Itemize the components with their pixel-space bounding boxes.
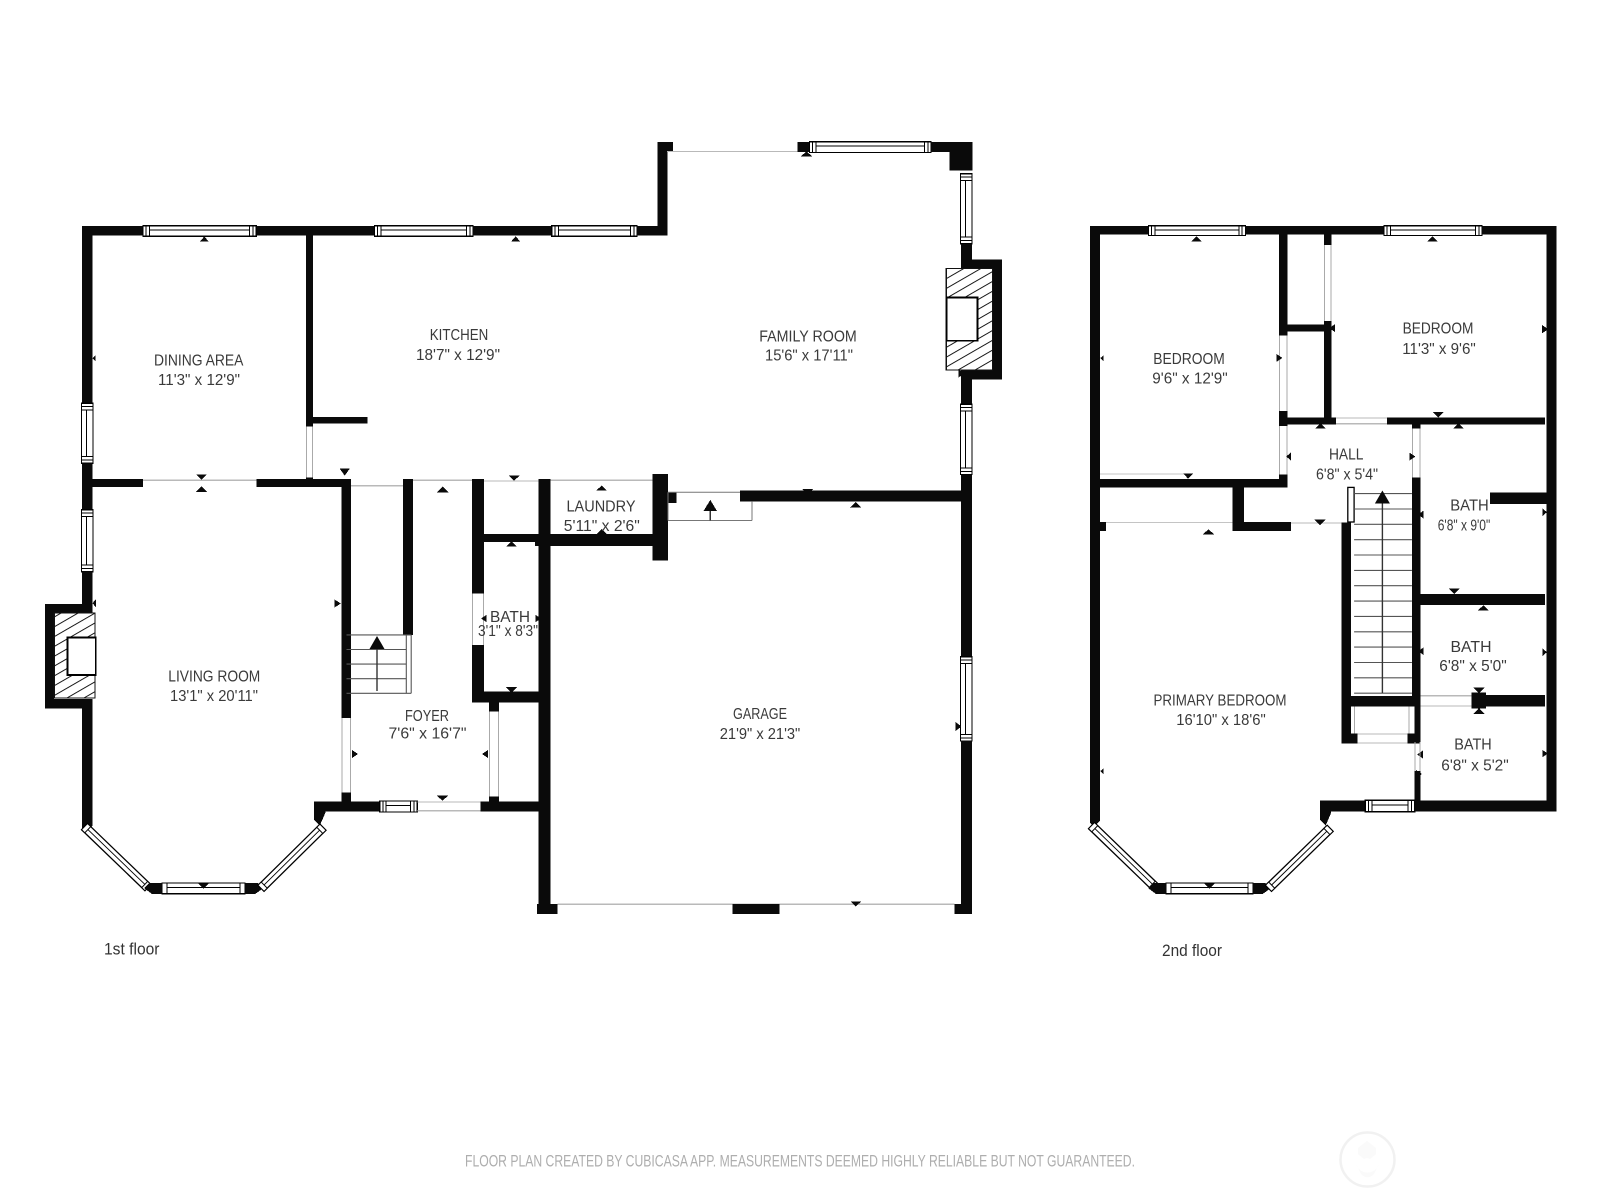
svg-text:BEDROOM: BEDROOM [1153,351,1225,368]
svg-text:2nd floor: 2nd floor [1162,942,1222,960]
svg-text:FLOOR PLAN CREATED BY CUBICASA: FLOOR PLAN CREATED BY CUBICASA APP. MEAS… [465,1153,1135,1171]
svg-text:7'6" x 16'7": 7'6" x 16'7" [389,726,467,743]
svg-text:15'6" x 17'11": 15'6" x 17'11" [765,348,853,365]
svg-text:KITCHEN: KITCHEN [430,327,489,344]
svg-text:5'11" x 2'6": 5'11" x 2'6" [564,518,640,535]
svg-text:13'1" x 20'11": 13'1" x 20'11" [170,688,258,705]
svg-text:11'3" x 9'6": 11'3" x 9'6" [1402,341,1476,358]
svg-text:DINING AREA: DINING AREA [154,353,244,370]
svg-text:6'8" x 5'0": 6'8" x 5'0" [1439,658,1507,675]
svg-text:BATH: BATH [1450,498,1489,515]
svg-text:FOYER: FOYER [405,708,449,725]
svg-text:HALL: HALL [1329,446,1364,463]
svg-text:16'10" x 18'6": 16'10" x 18'6" [1176,712,1266,729]
svg-text:PRIMARY BEDROOM: PRIMARY BEDROOM [1154,693,1287,710]
svg-text:1st floor: 1st floor [104,940,160,958]
svg-text:BATH: BATH [1454,737,1492,754]
svg-text:9'6" x 12'9": 9'6" x 12'9" [1152,370,1227,387]
svg-text:BEDROOM: BEDROOM [1403,320,1474,337]
svg-text:6'8" x 5'2": 6'8" x 5'2" [1441,757,1509,774]
svg-text:LIVING ROOM: LIVING ROOM [168,669,260,686]
svg-text:11'3" x 12'9": 11'3" x 12'9" [158,372,240,389]
svg-text:21'9" x 21'3": 21'9" x 21'3" [720,726,801,743]
svg-text:LAUNDRY: LAUNDRY [567,499,636,516]
svg-text:18'7" x 12'9": 18'7" x 12'9" [416,347,500,364]
svg-text:6'8" x 5'4": 6'8" x 5'4" [1316,466,1378,483]
svg-text:GARAGE: GARAGE [733,706,787,723]
svg-text:6'8" x 9'0": 6'8" x 9'0" [1438,517,1491,534]
svg-text:BATH: BATH [1451,639,1492,656]
svg-text:FAMILY ROOM: FAMILY ROOM [759,329,857,346]
svg-text:3'1" x 8'3": 3'1" x 8'3" [478,623,538,640]
